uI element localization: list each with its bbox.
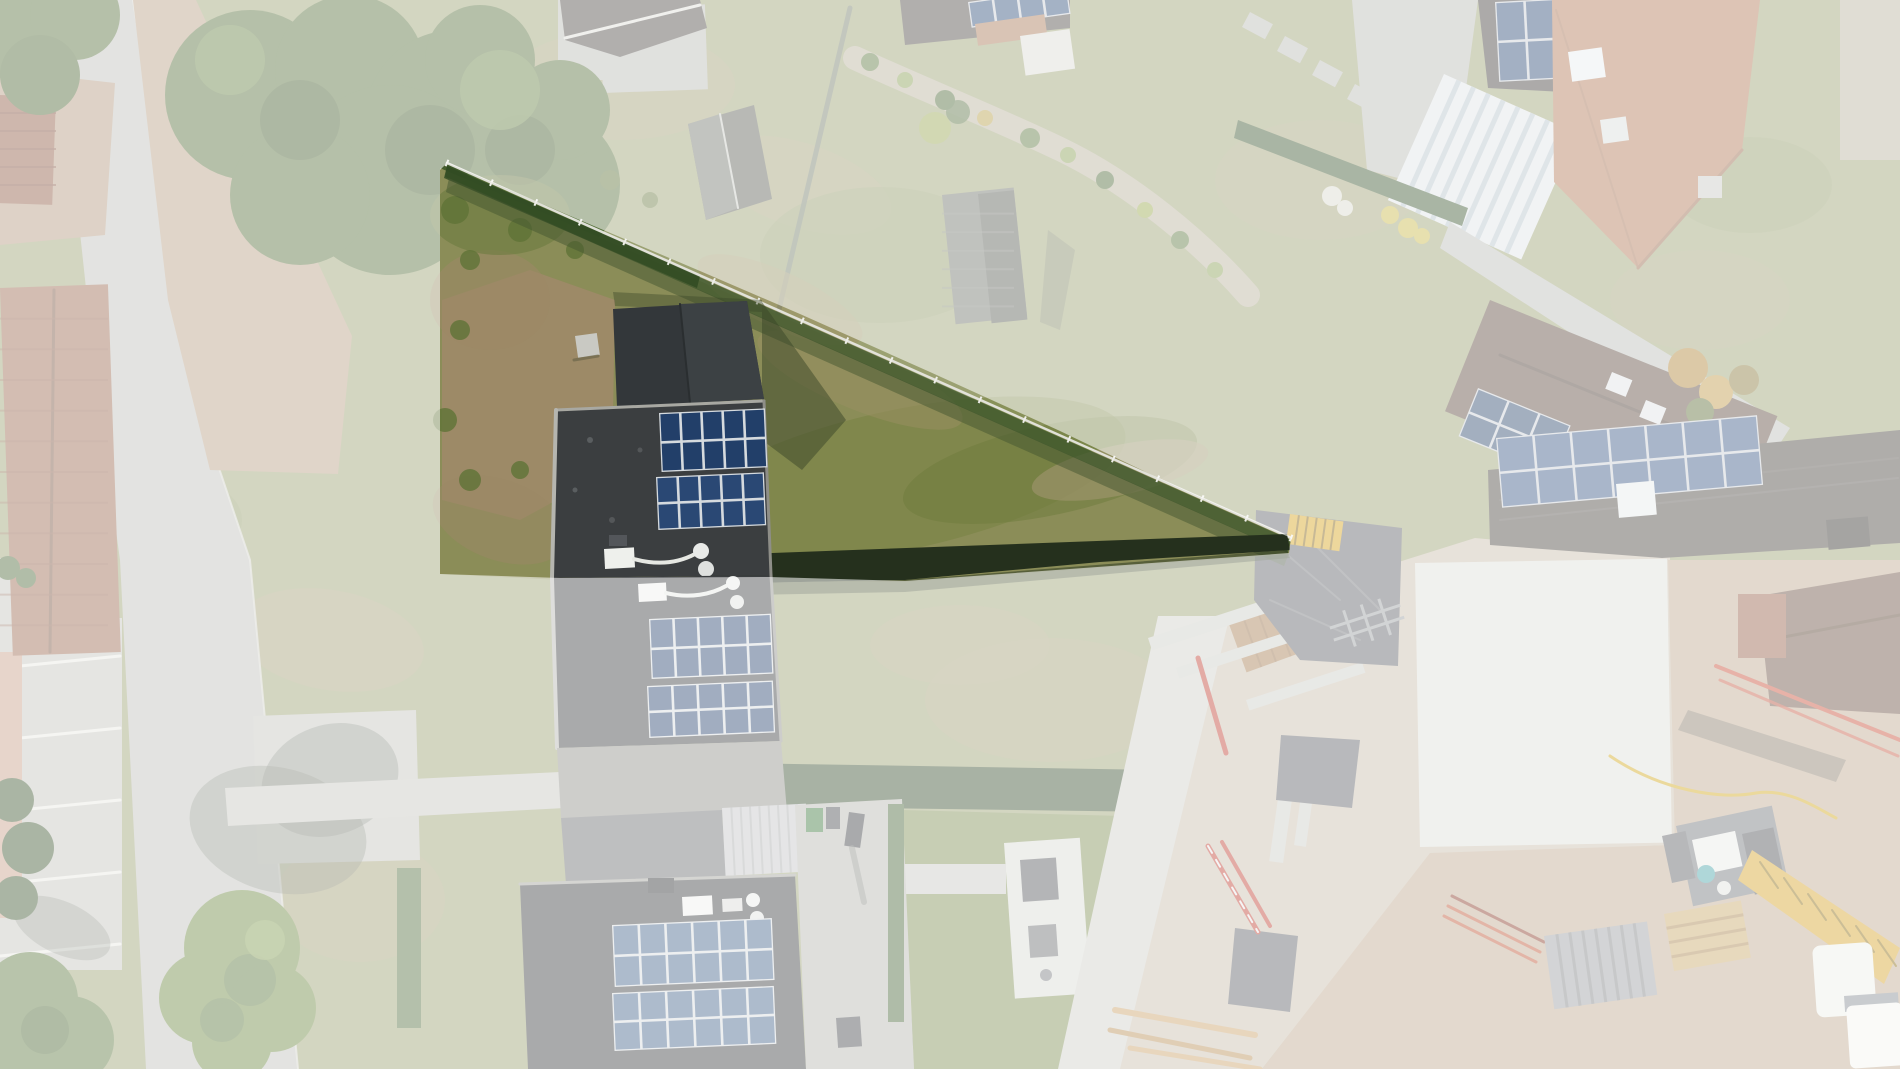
solar-array <box>659 408 767 472</box>
solar-array <box>656 472 766 530</box>
hvac-dark-box <box>609 535 627 546</box>
roof-speckle <box>638 448 643 453</box>
weed-clump <box>460 250 480 270</box>
aerial-photo <box>0 0 1900 1069</box>
parcel-dirt <box>430 250 550 350</box>
roof-vent <box>698 561 714 577</box>
aerial-photo-canvas <box>0 0 1900 1069</box>
roof-speckle <box>573 488 578 493</box>
weed-clump <box>511 461 529 479</box>
utility-box <box>575 333 600 358</box>
roof-vent <box>693 543 709 559</box>
weed-clump <box>459 469 481 491</box>
roof-speckle <box>609 517 615 523</box>
hvac-white-box <box>604 547 635 569</box>
roof-speckle <box>587 437 593 443</box>
weed-clump <box>450 320 470 340</box>
